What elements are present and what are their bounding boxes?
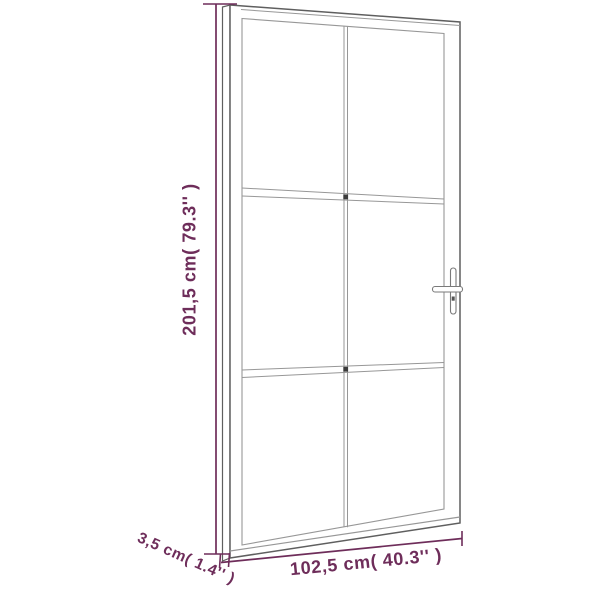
- handle-keyhole: [452, 297, 455, 301]
- handle-lever: [433, 287, 463, 293]
- door-dimension-diagram: 201,5 cm( 79.3'' ) 102,5 cm( 40.3'' ) 3,…: [0, 0, 600, 600]
- muntin-joint-top: [343, 195, 348, 200]
- height-dimension-label: 201,5 cm( 79.3'' ): [180, 150, 201, 370]
- door-left-edge-face: [223, 5, 231, 561]
- door-drawing: [0, 0, 600, 600]
- muntin-joint-bottom: [343, 367, 348, 372]
- door-front-face: [230, 5, 460, 558]
